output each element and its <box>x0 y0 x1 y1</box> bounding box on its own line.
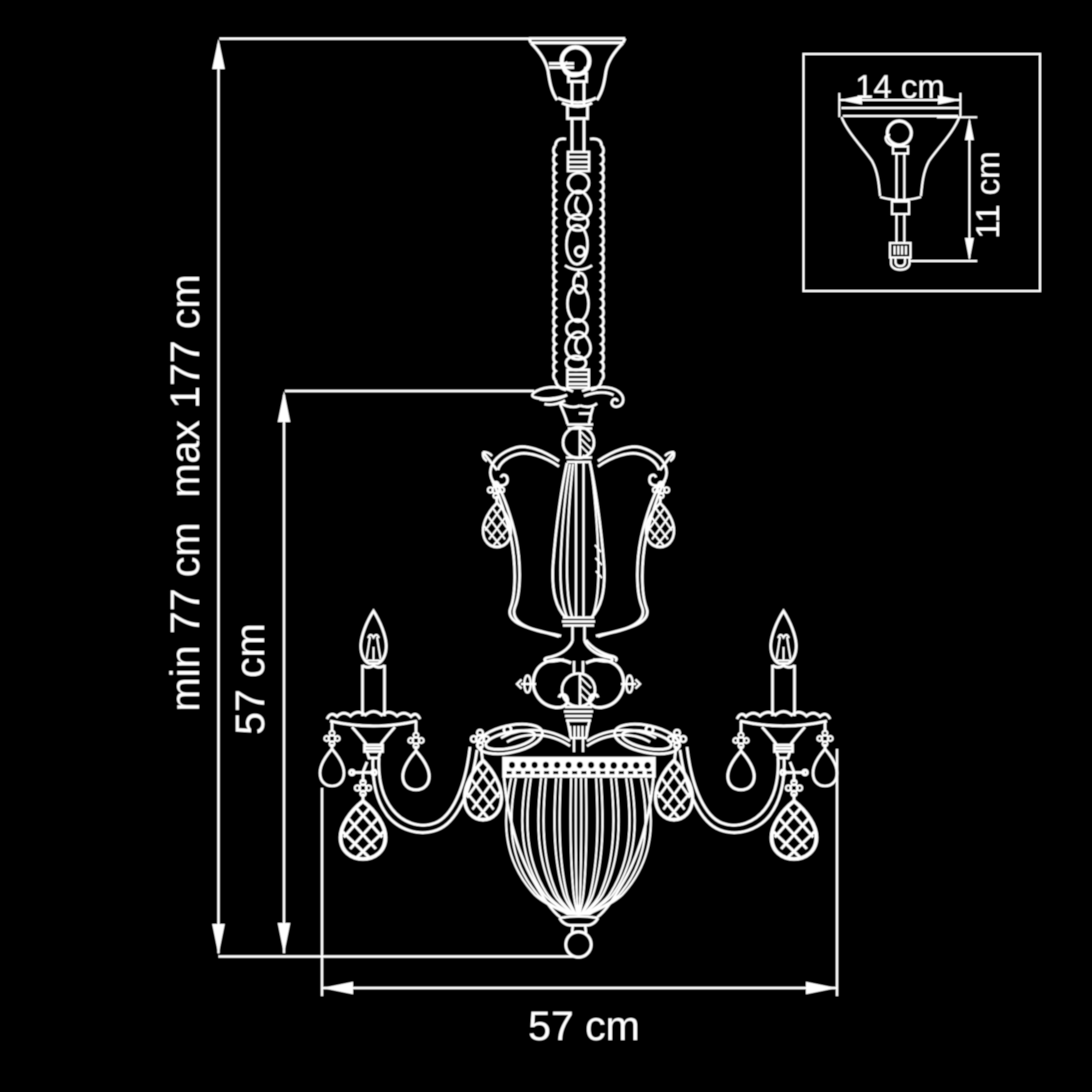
svg-text:57 cm: 57 cm <box>528 1003 640 1049</box>
svg-text:min 77 cm: min 77 cm <box>162 522 208 711</box>
svg-text:14 cm: 14 cm <box>855 68 945 105</box>
svg-text:11 cm: 11 cm <box>969 151 1006 238</box>
svg-text:57 cm: 57 cm <box>227 623 273 735</box>
svg-text:max 177 cm: max 177 cm <box>162 274 208 497</box>
